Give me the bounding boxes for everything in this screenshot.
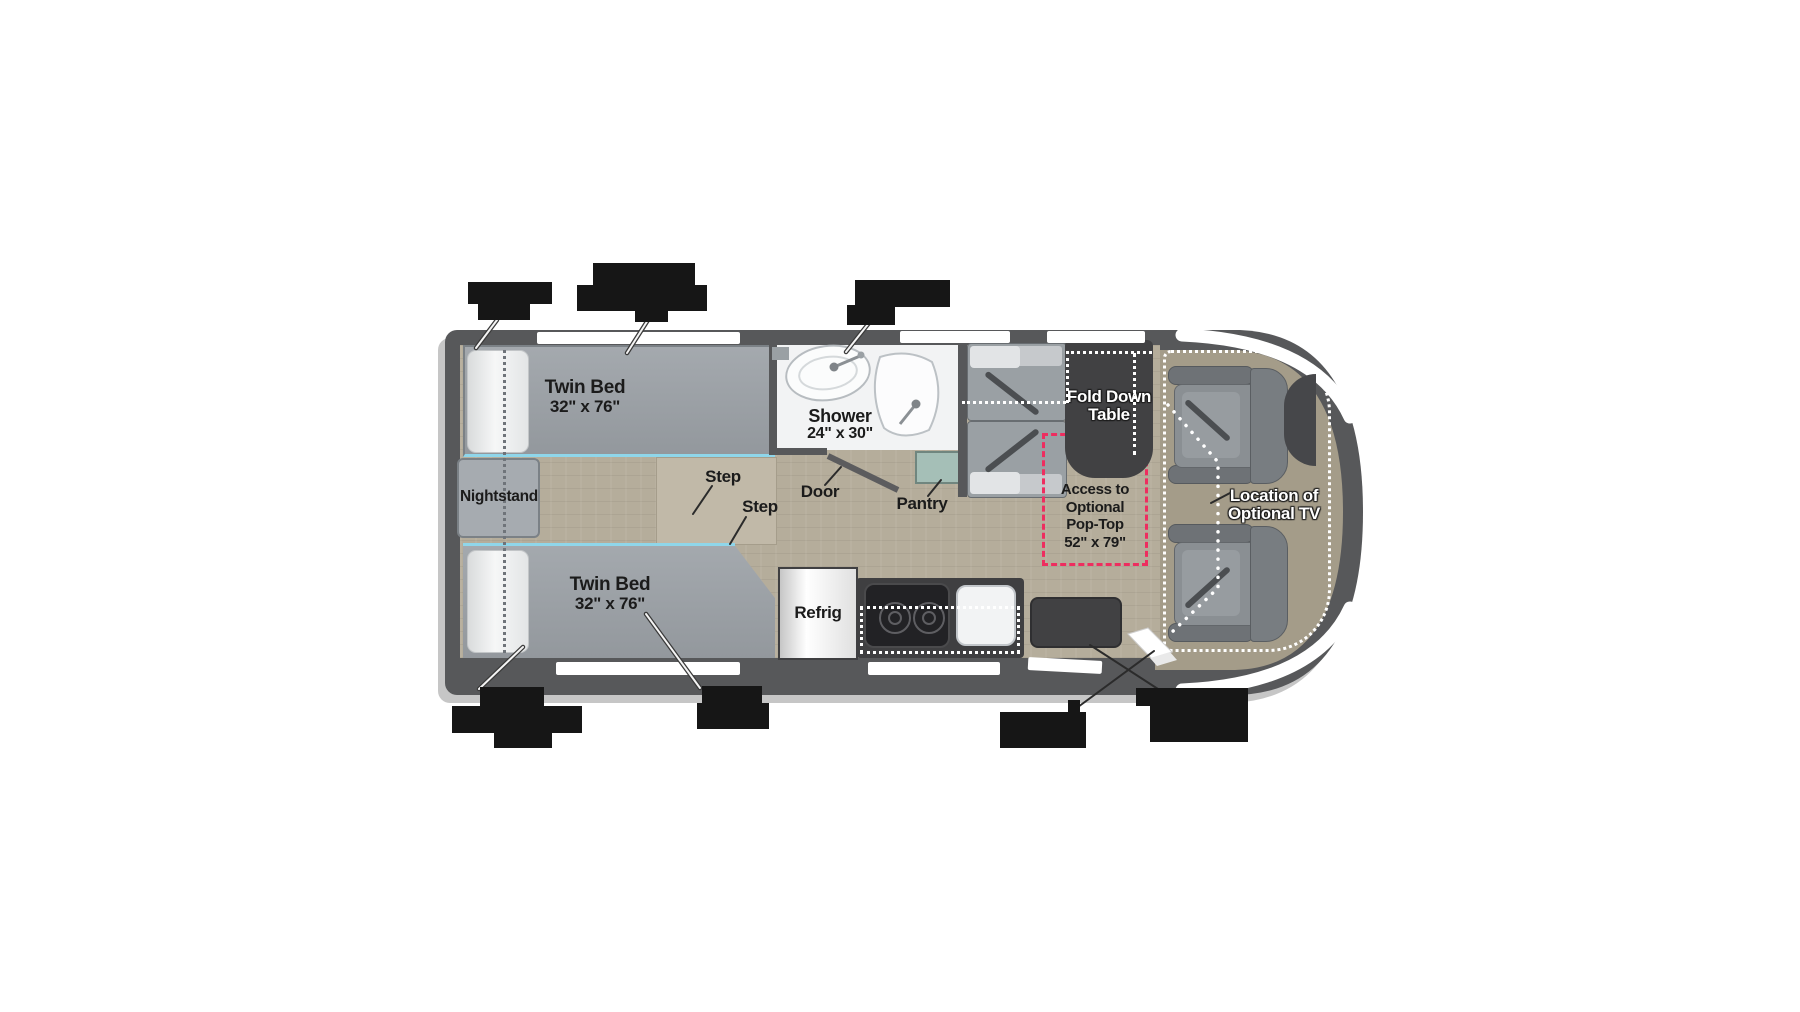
entry-door-steps <box>1128 628 1177 666</box>
leader-lines-dark <box>693 467 1230 707</box>
floorplan-canvas: Fold Down Table <box>0 0 1800 1012</box>
bathroom-door-swing <box>828 456 898 490</box>
shower-pan <box>783 340 874 405</box>
overlay-lines <box>0 0 1800 1012</box>
bathroom-sink <box>875 353 938 435</box>
bathroom-corner-fixture <box>772 347 789 360</box>
